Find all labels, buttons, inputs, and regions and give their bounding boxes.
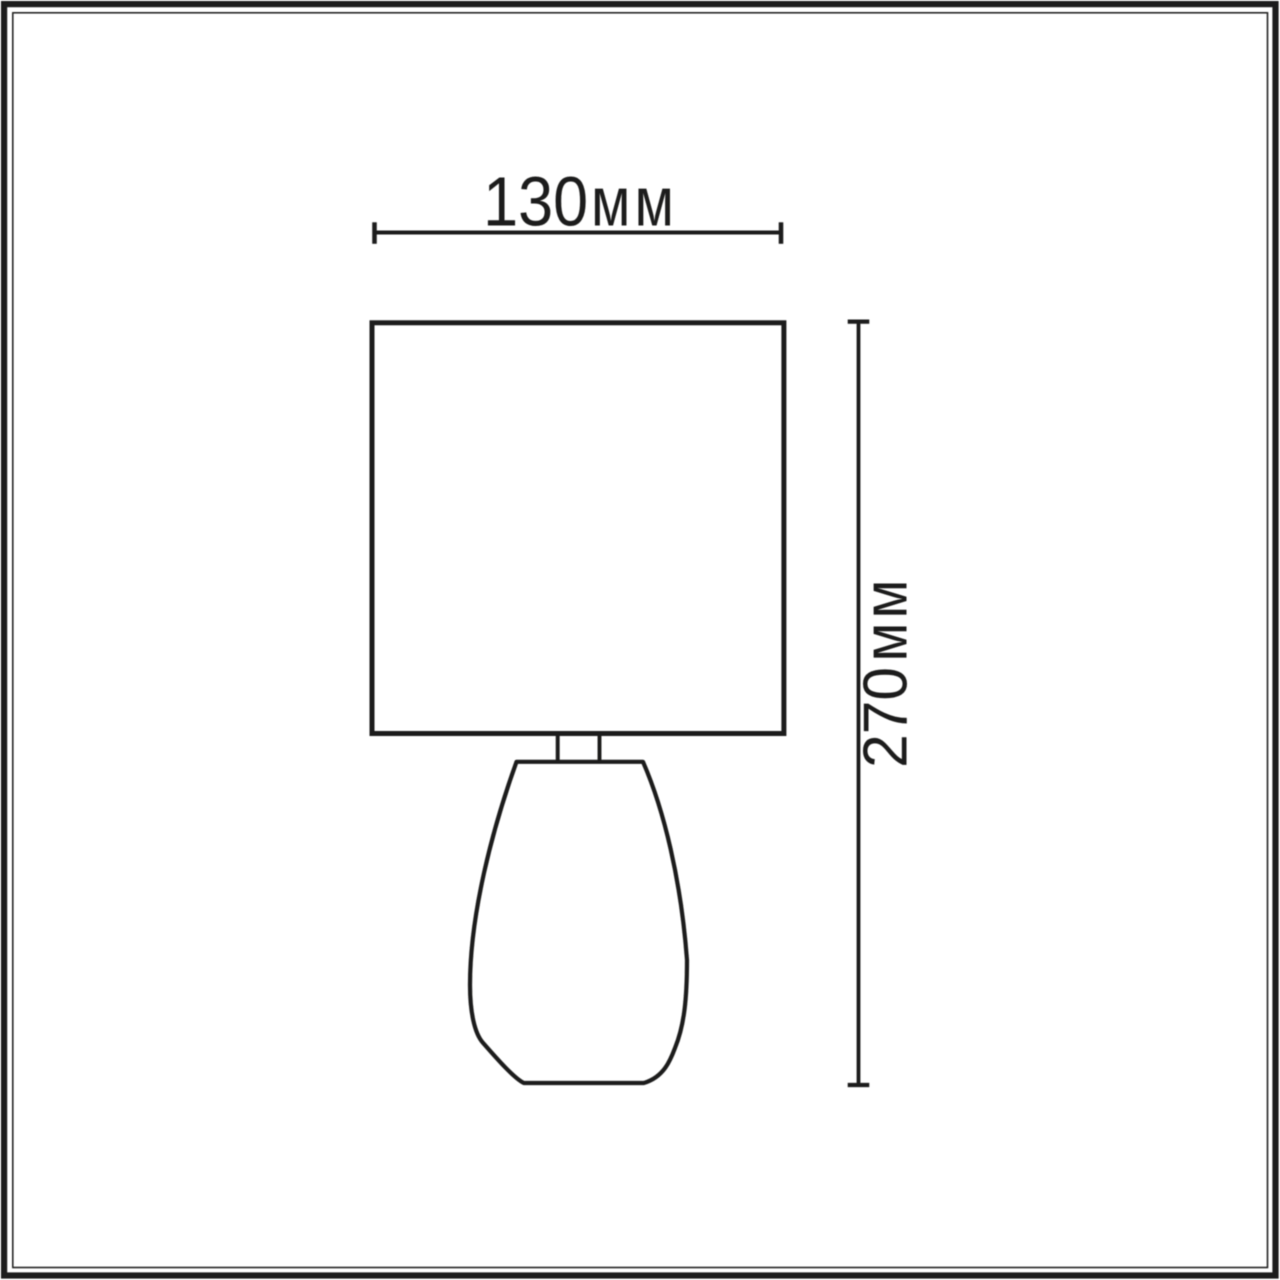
svg-text:130: 130 xyxy=(483,163,588,241)
svg-text:270: 270 xyxy=(852,667,921,768)
svg-text:мм: мм xyxy=(591,163,678,241)
svg-text:мм: мм xyxy=(852,576,921,662)
